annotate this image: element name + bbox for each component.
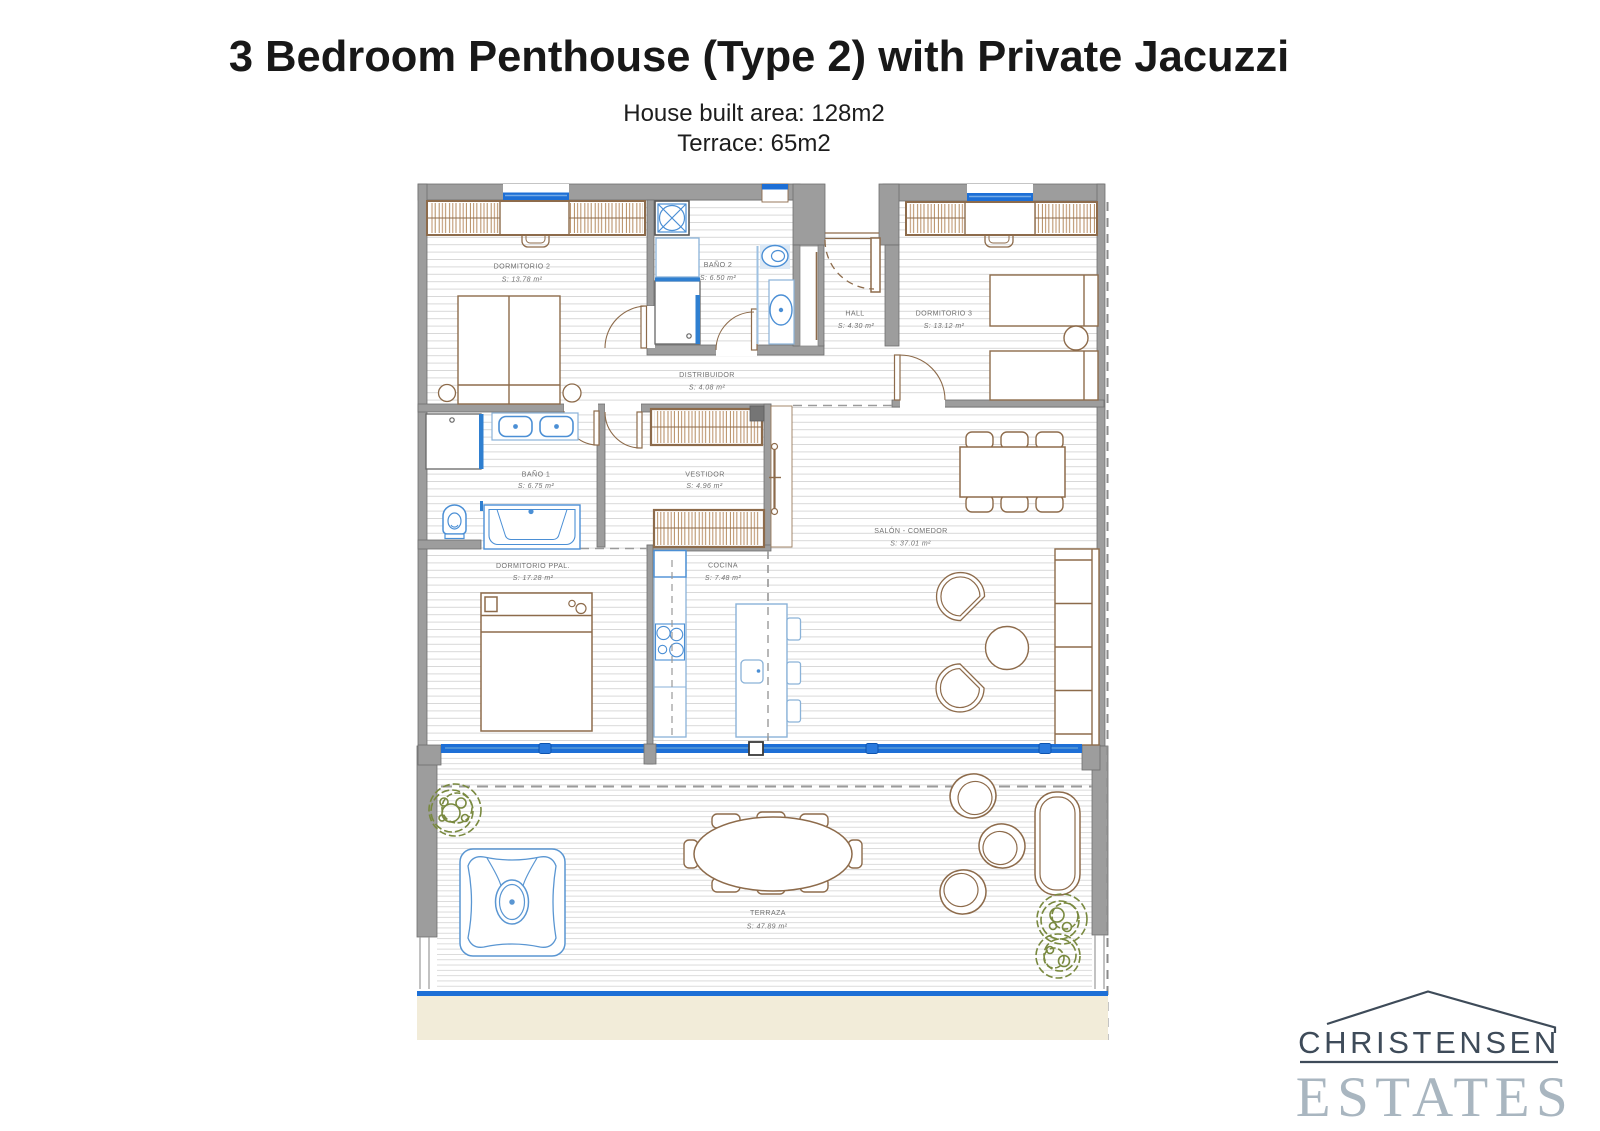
svg-text:S: 6.75 m²: S: 6.75 m² bbox=[518, 483, 555, 490]
svg-text:BAÑO 1: BAÑO 1 bbox=[522, 470, 550, 479]
svg-text:VESTIDOR: VESTIDOR bbox=[685, 471, 724, 479]
svg-text:DORMITORIO PPAL.: DORMITORIO PPAL. bbox=[496, 562, 570, 570]
svg-text:S: 4.96 m²: S: 4.96 m² bbox=[686, 483, 723, 490]
svg-text:SALÓN - COMEDOR: SALÓN - COMEDOR bbox=[874, 526, 947, 535]
svg-text:ESTATES: ESTATES bbox=[1296, 1066, 1574, 1129]
svg-text:HALL: HALL bbox=[845, 310, 864, 318]
svg-text:DISTRIBUIDOR: DISTRIBUIDOR bbox=[679, 371, 735, 379]
svg-text:S: 47.89 m²: S: 47.89 m² bbox=[747, 924, 788, 931]
svg-text:S: 13.78 m²: S: 13.78 m² bbox=[502, 277, 543, 284]
svg-text:S: 13.12 m²: S: 13.12 m² bbox=[924, 323, 965, 330]
svg-text:BAÑO 2: BAÑO 2 bbox=[704, 260, 732, 269]
svg-text:S: 17.28 m²: S: 17.28 m² bbox=[513, 575, 554, 582]
svg-text:DORMITORIO 3: DORMITORIO 3 bbox=[916, 310, 973, 318]
svg-text:S: 7.48 m²: S: 7.48 m² bbox=[705, 575, 742, 582]
svg-text:S: 37.01 m²: S: 37.01 m² bbox=[890, 541, 931, 548]
svg-text:S: 4.30 m²: S: 4.30 m² bbox=[838, 323, 875, 330]
svg-text:TERRAZA: TERRAZA bbox=[750, 909, 786, 917]
svg-text:CHRISTENSEN: CHRISTENSEN bbox=[1298, 1025, 1560, 1060]
svg-text:S: 6.50 m²: S: 6.50 m² bbox=[700, 275, 737, 282]
svg-text:DORMITORIO 2: DORMITORIO 2 bbox=[494, 263, 551, 271]
svg-text:COCINA: COCINA bbox=[708, 562, 738, 570]
svg-text:S: 4.08 m²: S: 4.08 m² bbox=[689, 385, 726, 392]
